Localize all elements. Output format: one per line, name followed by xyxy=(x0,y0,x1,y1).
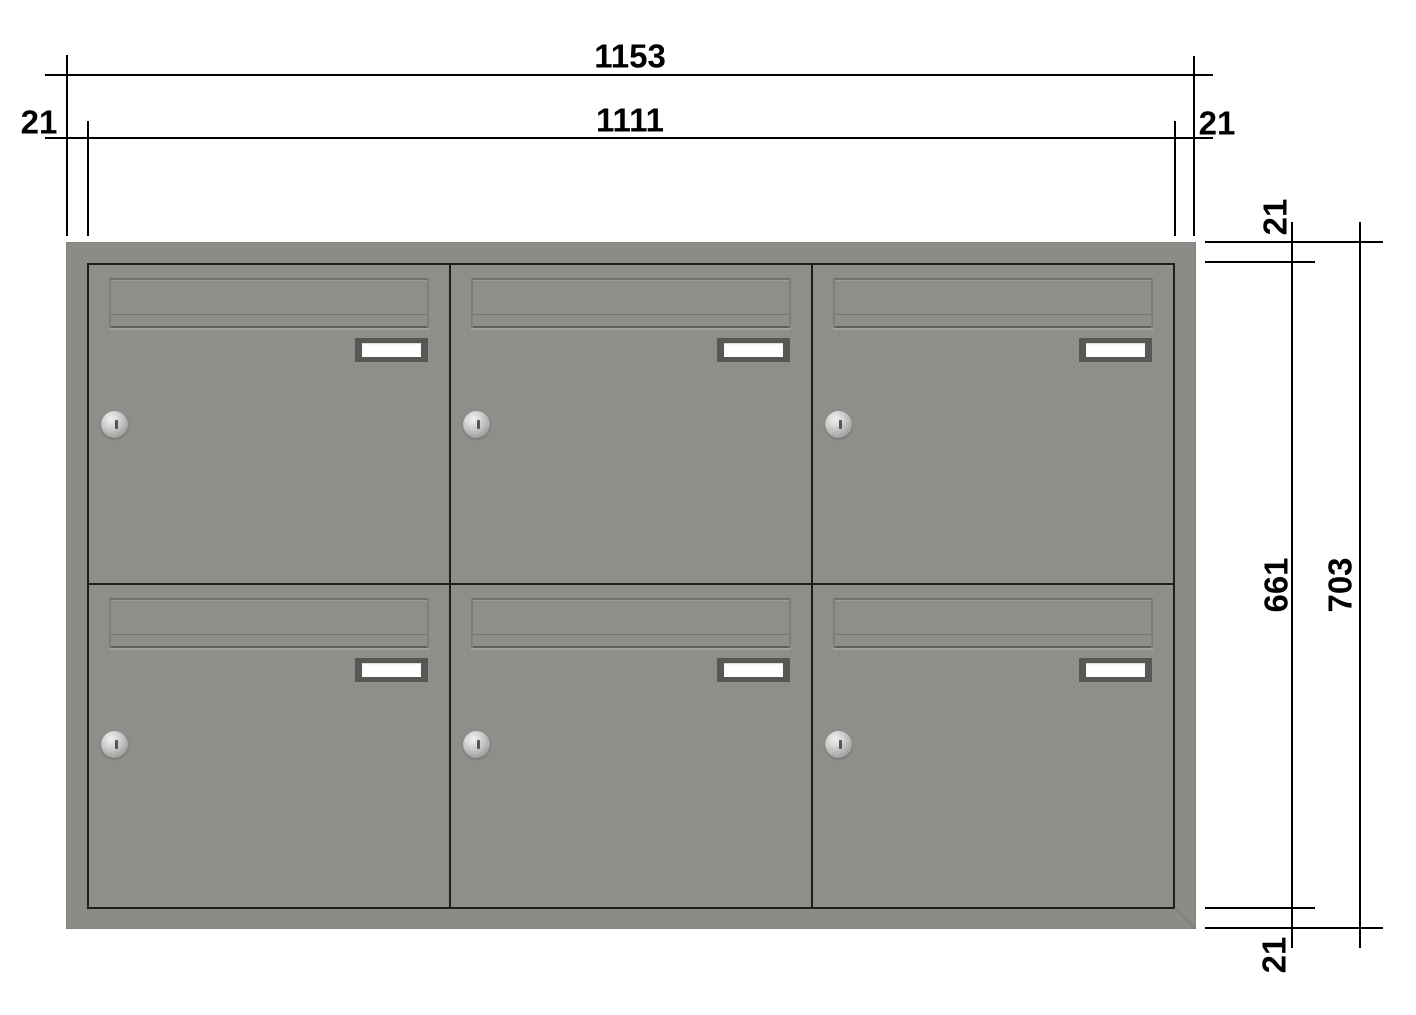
lock-cylinder-icon xyxy=(825,411,852,438)
mailbox-door xyxy=(813,265,1173,583)
extension-line-top-inner xyxy=(1205,261,1315,263)
lock-cylinder-icon xyxy=(101,411,128,438)
extension-line-bottom-outer xyxy=(1205,927,1383,929)
letter-flap xyxy=(471,598,791,648)
mailbox-grid xyxy=(87,263,1175,909)
dim-label-right-offset: 21 xyxy=(1199,107,1236,140)
mailbox-cabinet xyxy=(66,242,1196,929)
name-plate xyxy=(1079,658,1152,682)
mailbox-door xyxy=(451,265,811,583)
lock-cylinder-icon xyxy=(463,411,490,438)
dim-label-top-offset: 21 xyxy=(1259,199,1292,236)
name-plate xyxy=(355,658,428,682)
dim-line-overall-height xyxy=(1359,222,1361,948)
letter-flap xyxy=(833,598,1153,648)
mailbox-door xyxy=(813,585,1173,907)
extension-line-left-outer xyxy=(66,55,68,236)
letter-flap xyxy=(471,278,791,328)
name-plate xyxy=(717,658,790,682)
name-plate xyxy=(717,338,790,362)
dim-label-overall-width: 1153 xyxy=(594,40,666,73)
dim-label-left-offset: 21 xyxy=(21,106,58,139)
dim-label-body-width: 1111 xyxy=(596,104,664,137)
dim-label-overall-height: 703 xyxy=(1324,557,1357,612)
extension-line-left-inner xyxy=(87,121,89,236)
extension-line-bottom-inner xyxy=(1205,907,1315,909)
lock-cylinder-icon xyxy=(101,731,128,758)
dim-label-bottom-offset: 21 xyxy=(1258,937,1291,974)
extension-line-right-inner xyxy=(1174,121,1176,236)
letter-flap xyxy=(833,278,1153,328)
letter-flap xyxy=(109,598,429,648)
technical-drawing: 1153 1111 21 21 21 661 703 21 xyxy=(0,0,1416,1015)
dim-label-body-height: 661 xyxy=(1260,557,1293,612)
mailbox-door xyxy=(89,585,449,907)
extension-line-right-outer xyxy=(1193,56,1195,236)
letter-flap xyxy=(109,278,429,328)
extension-line-top-outer xyxy=(1205,241,1383,243)
name-plate xyxy=(1079,338,1152,362)
mailbox-door xyxy=(451,585,811,907)
lock-cylinder-icon xyxy=(463,731,490,758)
lock-cylinder-icon xyxy=(825,731,852,758)
name-plate xyxy=(355,338,428,362)
mailbox-door xyxy=(89,265,449,583)
